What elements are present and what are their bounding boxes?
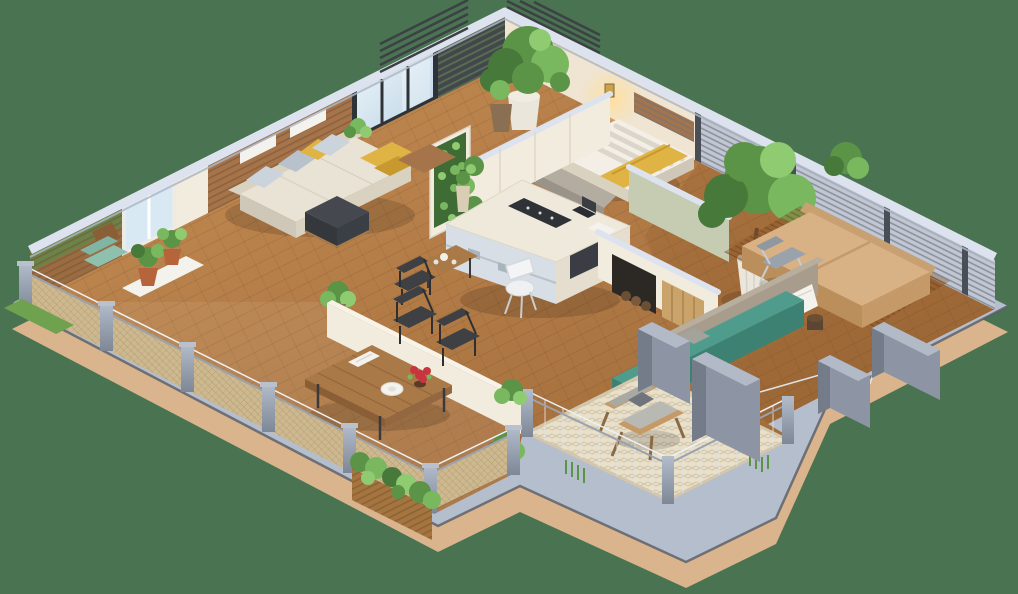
side-stool	[807, 314, 823, 330]
teapot	[440, 253, 448, 261]
screen-post	[695, 110, 701, 163]
railing-post	[662, 456, 674, 504]
railing-post	[782, 396, 794, 444]
floor-plan-stage	[0, 0, 1018, 594]
isometric-floor-plan-render	[0, 0, 1018, 594]
